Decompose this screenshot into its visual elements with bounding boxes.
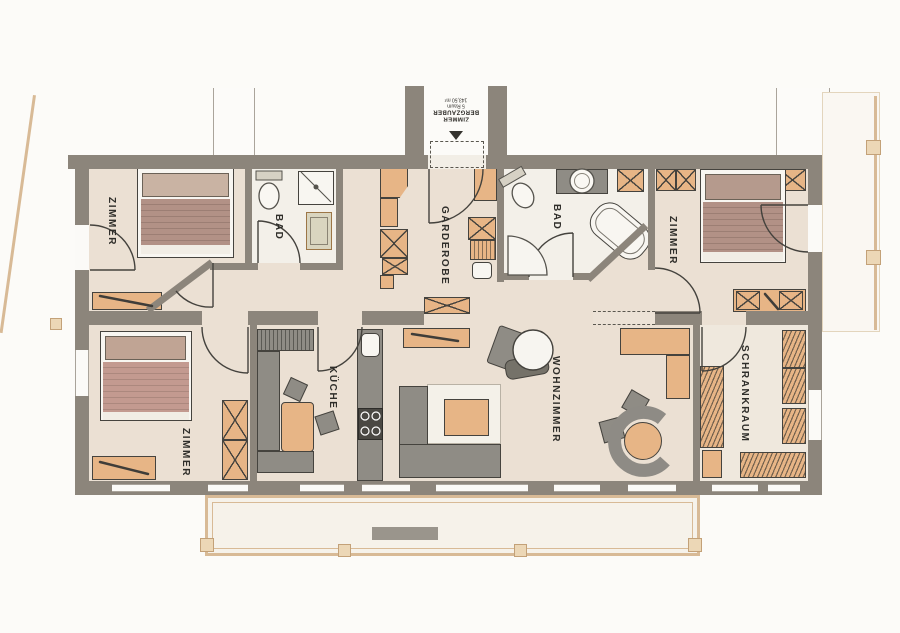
door-arc bbox=[318, 327, 362, 371]
room-label-bad-left: BAD bbox=[273, 214, 284, 240]
entrance-stamp: ZIMMER BERGZAUBER 5 Raum 143,50 m² bbox=[420, 96, 492, 121]
swivel-chair bbox=[513, 330, 553, 370]
room-label-garderobe: GARDEROBE bbox=[439, 206, 450, 285]
plan-linework bbox=[0, 0, 900, 633]
sideboard-stick bbox=[412, 334, 458, 341]
round-washbasin bbox=[570, 169, 594, 193]
stamp-line: 5 Raum bbox=[420, 102, 492, 108]
door-arc bbox=[655, 268, 700, 313]
entrance-arrow-icon bbox=[449, 131, 463, 140]
room-label-zimmer-top-left: ZIMMER bbox=[106, 197, 117, 246]
toilet bbox=[499, 166, 541, 213]
door-arc bbox=[176, 263, 213, 307]
stamp-line: 143,50 m² bbox=[420, 96, 492, 102]
door-arc bbox=[202, 327, 248, 373]
shower-drain bbox=[314, 185, 319, 190]
bench-stick bbox=[765, 294, 778, 309]
curved-desk bbox=[615, 412, 665, 470]
toilet bbox=[259, 183, 279, 209]
kitchen-living-details bbox=[100, 294, 778, 474]
toilet-tank bbox=[256, 171, 282, 180]
stamp-line: ZIMMER bbox=[420, 114, 492, 121]
corner-shower bbox=[508, 236, 547, 275]
bench-stick bbox=[100, 462, 148, 474]
room-label-zimmer-bottom-left: ZIMMER bbox=[180, 428, 191, 477]
room-label-wohnzimmer: WOHNZIMMER bbox=[550, 356, 561, 443]
toilet-bowl bbox=[508, 179, 538, 212]
stamp-line: BERGZAUBER bbox=[420, 108, 492, 115]
floor-plan: ZIMMER BAD GARDEROBE BAD ZIMMER ZIMMER K… bbox=[0, 0, 900, 633]
room-label-schrankraum: SCHRANKRAUM bbox=[739, 345, 750, 443]
door-arc bbox=[761, 205, 808, 252]
bench-stick bbox=[100, 296, 152, 306]
decor-sticks bbox=[100, 294, 778, 474]
room-label-kueche: KÜCHE bbox=[327, 366, 338, 410]
cooktop-burners bbox=[361, 412, 380, 435]
room-label-zimmer-top-right: ZIMMER bbox=[667, 216, 678, 265]
bath-fixtures bbox=[256, 166, 594, 275]
door-arc bbox=[429, 169, 483, 223]
room-label-bad-right: BAD bbox=[551, 204, 562, 230]
